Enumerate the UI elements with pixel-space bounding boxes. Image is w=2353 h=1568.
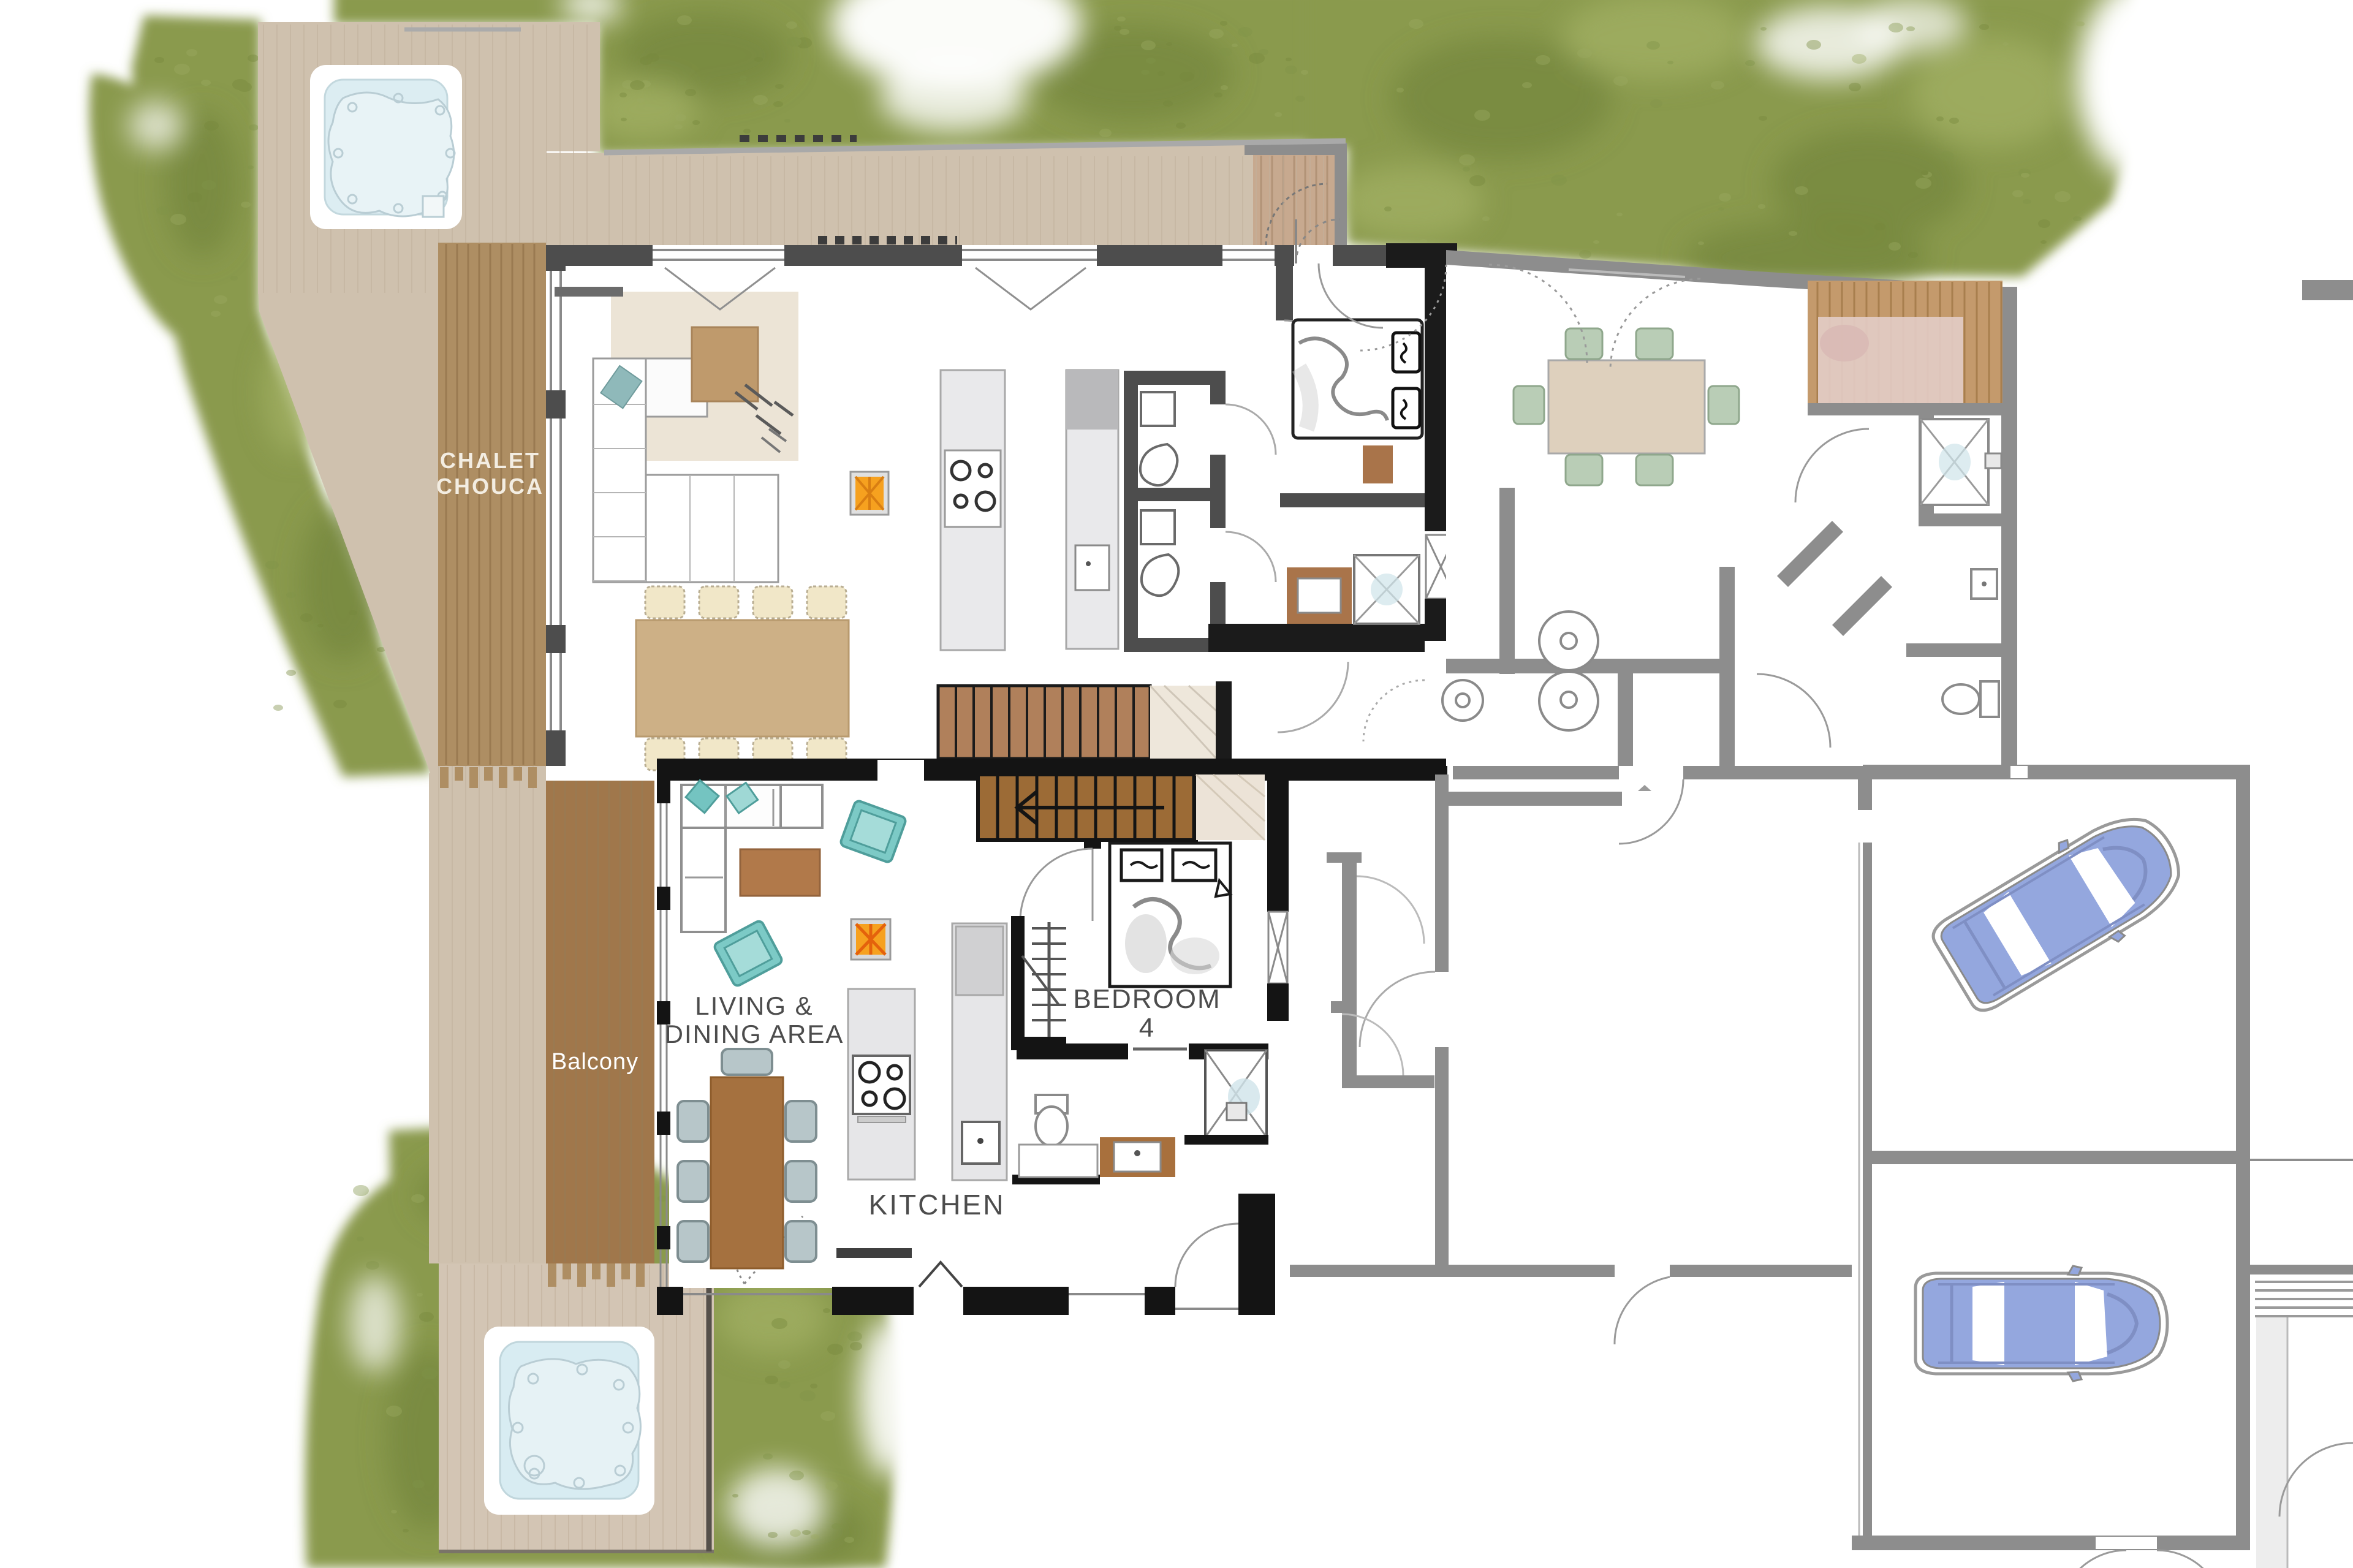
svg-text:Balcony: Balcony — [551, 1049, 638, 1075]
svg-text:CHALET: CHALET — [440, 448, 540, 473]
svg-text:KITCHEN: KITCHEN — [869, 1189, 1006, 1221]
svg-text:DINING AREA: DINING AREA — [665, 1020, 844, 1048]
svg-text:BEDROOM: BEDROOM — [1073, 984, 1221, 1014]
svg-text:4: 4 — [1139, 1013, 1155, 1043]
svg-text:CHOUCA: CHOUCA — [436, 474, 544, 499]
svg-text:LIVING &: LIVING & — [695, 991, 813, 1020]
